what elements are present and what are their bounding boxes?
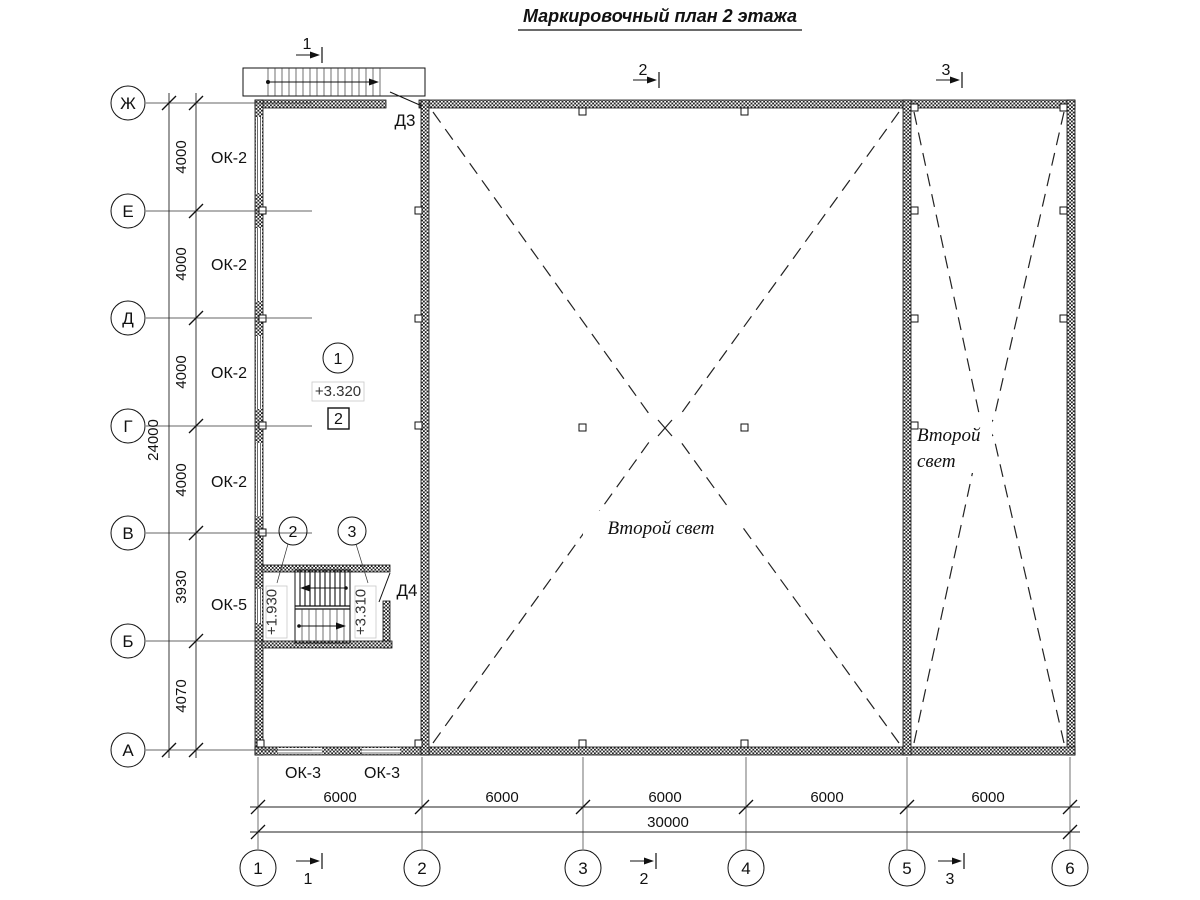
axis-col-5: 5: [902, 859, 911, 878]
svg-text:ОК-2: ОК-2: [211, 365, 247, 382]
axis-lines: [146, 103, 1070, 849]
svg-text:6000: 6000: [323, 789, 356, 806]
axis-col-2: 2: [417, 859, 426, 878]
dimension-texts: 4000 4000 4000 4000 3930 4070 24000 6000…: [145, 140, 1005, 831]
axis-row-e: Е: [122, 202, 133, 221]
svg-text:24000: 24000: [145, 419, 162, 461]
svg-text:ОК-2: ОК-2: [211, 474, 247, 491]
svg-text:3930: 3930: [173, 570, 190, 603]
door-leaf-d3: [390, 92, 422, 106]
door-leaf-d4: [379, 573, 390, 602]
stair-marker-3: 3: [348, 524, 357, 541]
section-marks: 1 2 3 1 2 3: [296, 36, 964, 888]
svg-text:6000: 6000: [810, 789, 843, 806]
section-top-2: 2: [639, 62, 648, 79]
axis-row-v: В: [122, 524, 133, 543]
svg-text:6000: 6000: [485, 789, 518, 806]
section-top-1: 1: [303, 36, 312, 53]
second-light-label-right-1: Второй: [917, 425, 981, 446]
external-stair: [243, 68, 425, 96]
axis-row-a: А: [122, 741, 134, 760]
axis-row-zh: Ж: [120, 94, 136, 113]
interior-stair: [295, 570, 350, 643]
section-bottom-2: 2: [640, 871, 649, 888]
floor-plan-svg: Маркировочный план 2 этажа: [0, 0, 1200, 900]
level-stair-flight1: +1.930: [264, 589, 281, 635]
section-bottom-1: 1: [304, 871, 313, 888]
svg-text:4000: 4000: [173, 463, 190, 496]
svg-text:ОК-2: ОК-2: [211, 150, 247, 167]
section-bottom-3: 3: [946, 871, 955, 888]
detail-box-number: 2: [334, 411, 343, 428]
room-number: 1: [334, 351, 343, 368]
row-axis-bubbles: Ж Е Д Г В Б А: [111, 86, 145, 767]
level-floor: +3.320: [315, 383, 361, 400]
window-labels: ОК-2 ОК-2 ОК-2 ОК-2 ОК-5 ОК-3 ОК-3: [211, 150, 400, 782]
wall-axis-5: [903, 100, 911, 755]
col-axis-bubbles: 1 2 3 4 5 6: [240, 850, 1088, 886]
svg-text:4000: 4000: [173, 355, 190, 388]
stair-marker-2: 2: [289, 524, 298, 541]
axis-col-6: 6: [1065, 859, 1074, 878]
svg-text:4000: 4000: [173, 140, 190, 173]
drawing-sheet: Маркировочный план 2 этажа: [0, 0, 1200, 900]
svg-text:ОК-2: ОК-2: [211, 257, 247, 274]
door-label-d3: Д3: [395, 111, 416, 130]
svg-text:4000: 4000: [173, 247, 190, 280]
section-top-3: 3: [942, 62, 951, 79]
svg-text:ОК-3: ОК-3: [364, 765, 400, 782]
level-stair-flight2: +3.310: [353, 589, 370, 635]
axis-row-b: Б: [122, 632, 133, 651]
page-title: Маркировочный план 2 этажа: [523, 6, 797, 26]
axis-row-d: Д: [122, 309, 134, 328]
window-openings: [256, 117, 400, 754]
axis-row-g: Г: [123, 417, 132, 436]
svg-text:4070: 4070: [173, 679, 190, 712]
second-light-label-center: Второй свет: [608, 518, 715, 539]
door-label-d4: Д4: [397, 581, 418, 600]
second-light-label-right-2: свет: [917, 451, 956, 472]
svg-text:6000: 6000: [648, 789, 681, 806]
axis-col-4: 4: [741, 859, 750, 878]
svg-text:ОК-3: ОК-3: [285, 765, 321, 782]
svg-text:6000: 6000: [971, 789, 1004, 806]
svg-text:30000: 30000: [647, 814, 689, 831]
svg-text:ОК-5: ОК-5: [211, 597, 247, 614]
axis-col-1: 1: [253, 859, 262, 878]
axis-col-3: 3: [578, 859, 587, 878]
